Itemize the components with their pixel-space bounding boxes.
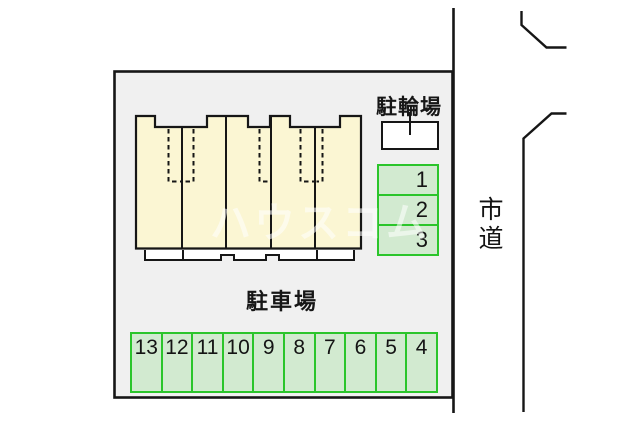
site-plan: 駐輪場 1 2 3 駐車場 13 12 11 10 9 8 7 6 5 4 市道…	[0, 0, 640, 426]
bicycle-parking-entry-tick	[409, 112, 411, 135]
road-far-edge-lower	[524, 114, 567, 413]
parking-space-6: 6	[346, 334, 377, 391]
side-parking-spaces: 1 2 3	[377, 164, 439, 256]
parking-lot-label: 駐車場	[238, 284, 326, 316]
porch-strip	[145, 250, 354, 260]
parking-space-5: 5	[377, 334, 408, 391]
parking-space-7: 7	[316, 334, 347, 391]
parking-space-1: 1	[377, 164, 439, 196]
parking-space-3: 3	[377, 224, 439, 256]
parking-space-13: 13	[132, 334, 163, 391]
bottom-parking-row: 13 12 11 10 9 8 7 6 5 4	[130, 332, 438, 393]
building-footprint	[136, 116, 361, 249]
city-road-label: 市道	[476, 196, 501, 254]
parking-space-10: 10	[224, 334, 255, 391]
parking-space-12: 12	[163, 334, 194, 391]
road-far-edge-upper	[522, 11, 567, 48]
parking-space-8: 8	[285, 334, 316, 391]
parking-space-2: 2	[377, 194, 439, 226]
parking-space-11: 11	[193, 334, 224, 391]
parking-space-9: 9	[254, 334, 285, 391]
parking-space-4: 4	[407, 334, 436, 391]
